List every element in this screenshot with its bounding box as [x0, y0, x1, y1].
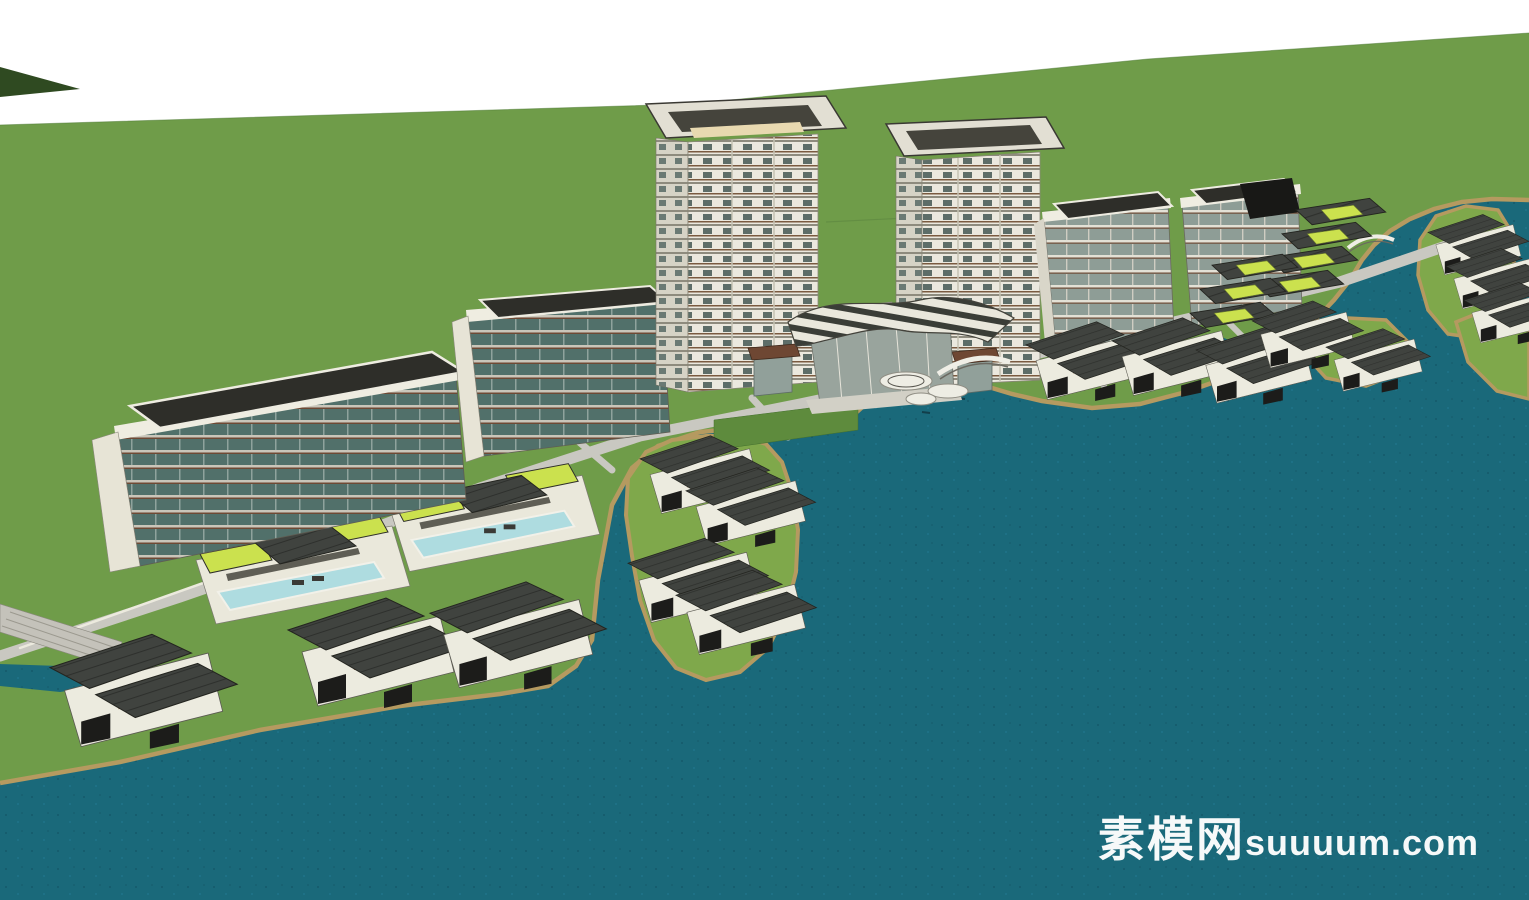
masterplan-render: 素模网suuuum.com	[0, 0, 1529, 900]
watermark: 素模网suuuum.com	[1098, 816, 1479, 863]
apartment-slab-2	[452, 286, 670, 462]
tower-1-entrance	[748, 344, 800, 396]
scene-svg	[0, 0, 1529, 900]
watermark-latin: suuuum.com	[1245, 825, 1479, 861]
watermark-cjk: 素模网	[1098, 816, 1245, 863]
east-block-2	[1180, 178, 1302, 326]
